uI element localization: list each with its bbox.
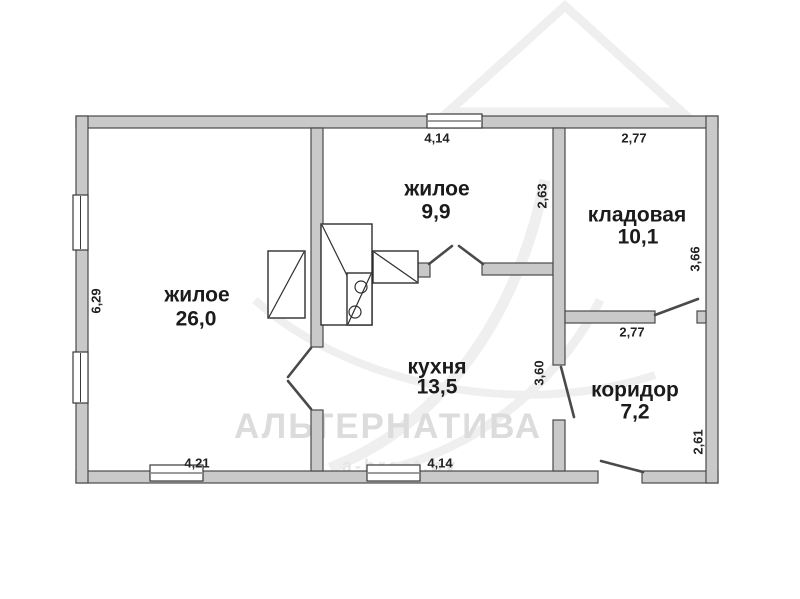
floorplan-canvas: АЛЬТЕРНАТИВА а-brest.by [0,0,800,599]
door-living-leaf-upper [288,348,311,377]
room-kitchen-area: 13,5 [417,375,458,398]
wall-storage-corridor [565,311,655,323]
door-room2-leaf-left [429,246,452,264]
door-entrance-leaf [601,461,643,472]
room-living-area: 26,0 [176,307,217,330]
dim-storage-height: 3,66 [688,246,703,271]
wall-right-section-lower [553,420,565,471]
door-room2-leaf-right [459,246,483,264]
wall-outer-top [76,116,718,128]
room-corridor-area: 7,2 [620,400,649,423]
wall-storage-corridor-stub [697,311,706,323]
dim-room2-height: 2,63 [535,183,550,208]
room-storage-name: кладовая [588,203,687,226]
dim-living-height: 6,29 [89,288,104,313]
wall-outer-right [706,116,718,483]
wall-room2-kitchen [482,263,553,275]
dim-kitchen-width: 4,14 [427,456,453,471]
watermark-triangle-icon [448,6,682,112]
wall-right-section-upper [553,128,565,365]
wall-room2-stub [418,263,430,277]
door-storage-leaf [655,299,698,315]
room-storage-area: 10,1 [618,225,659,248]
door-living-leaf-lower [288,381,311,409]
room-corridor-name: коридор [591,378,679,401]
dim-room2-width: 4,14 [424,131,450,146]
dim-living-width: 4,21 [184,456,209,471]
room-living2-area: 9,9 [421,200,450,223]
dim-storage-width: 2,77 [621,131,646,146]
dim-corridor-height: 2,61 [691,429,706,454]
floorplan-drawing: АЛЬТЕРНАТИВА а-brest.by [0,0,800,599]
wall-outer-left [76,116,88,483]
furniture [268,224,418,325]
watermark-brand: АЛЬТЕРНАТИВА [234,407,542,446]
room-living-name: жилое [163,283,229,306]
room-living2-name: жилое [403,177,469,200]
room-labels: жилое 26,0 жилое 9,9 кладовая 10,1 кухня… [163,177,686,423]
dim-corridor-width: 2,77 [619,325,644,340]
dim-kitchen-height: 3,60 [532,360,547,385]
wall-living-lower [311,410,323,471]
